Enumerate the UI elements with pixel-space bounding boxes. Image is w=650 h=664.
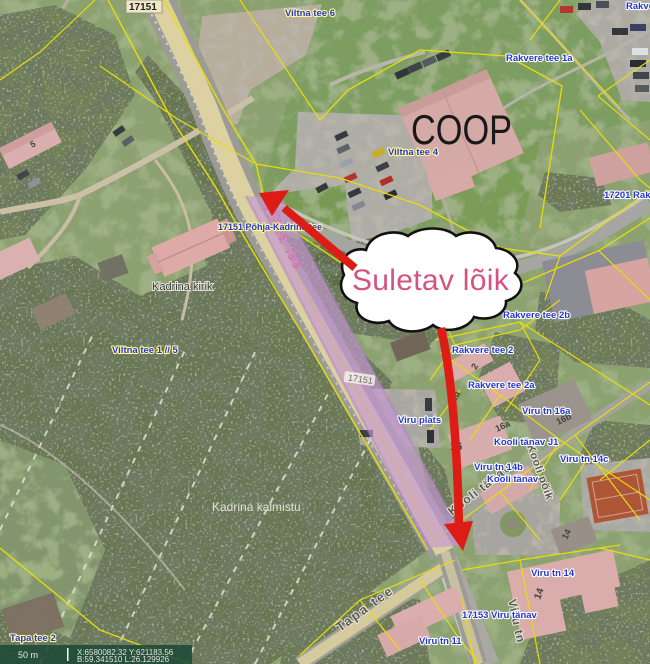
svg-text:Viru tn 14b: Viru tn 14b xyxy=(474,462,523,473)
svg-text:Rakvere tee 2: Rakvere tee 2 xyxy=(452,345,513,356)
svg-text:Rakvere tee 2b: Rakvere tee 2b xyxy=(503,310,570,321)
svg-text:Rakvere tee 2a: Rakvere tee 2a xyxy=(468,380,535,391)
svg-text:B:59.341510 L:26.129926: B:59.341510 L:26.129926 xyxy=(77,655,170,664)
svg-text:Tapa tee 2: Tapa tee 2 xyxy=(10,633,56,644)
svg-text:Viltna tee 1 // 5: Viltna tee 1 // 5 xyxy=(112,345,179,356)
svg-text:Viru tn 11: Viru tn 11 xyxy=(419,636,462,647)
svg-text:Viru tn 14: Viru tn 14 xyxy=(531,568,575,579)
svg-text:Kadrina kalmistu: Kadrina kalmistu xyxy=(212,500,301,514)
svg-text:17153 Viru tänav: 17153 Viru tänav xyxy=(462,610,538,621)
svg-text:Rakvere tee 1a: Rakvere tee 1a xyxy=(506,53,573,64)
svg-text:Viltna tee 4: Viltna tee 4 xyxy=(388,147,439,158)
svg-text:50 m: 50 m xyxy=(18,650,38,660)
svg-text:Kooli tänav J1: Kooli tänav J1 xyxy=(494,437,559,448)
svg-text:Kadrina kirik: Kadrina kirik xyxy=(152,281,213,293)
svg-text:Rakvere: Rakvere xyxy=(626,1,650,12)
svg-text:Viltna tee 6: Viltna tee 6 xyxy=(285,8,335,19)
svg-text:Viru tn 14c: Viru tn 14c xyxy=(560,454,608,465)
svg-text:COOP: COOP xyxy=(411,106,512,153)
svg-text:Kooli tänav: Kooli tänav xyxy=(487,474,539,485)
svg-text:17151: 17151 xyxy=(129,2,157,13)
svg-text:Viru plats: Viru plats xyxy=(398,415,441,426)
svg-text:17201 Rakv: 17201 Rakv xyxy=(604,190,650,201)
svg-text:Suletav lõik: Suletav lõik xyxy=(352,264,510,297)
